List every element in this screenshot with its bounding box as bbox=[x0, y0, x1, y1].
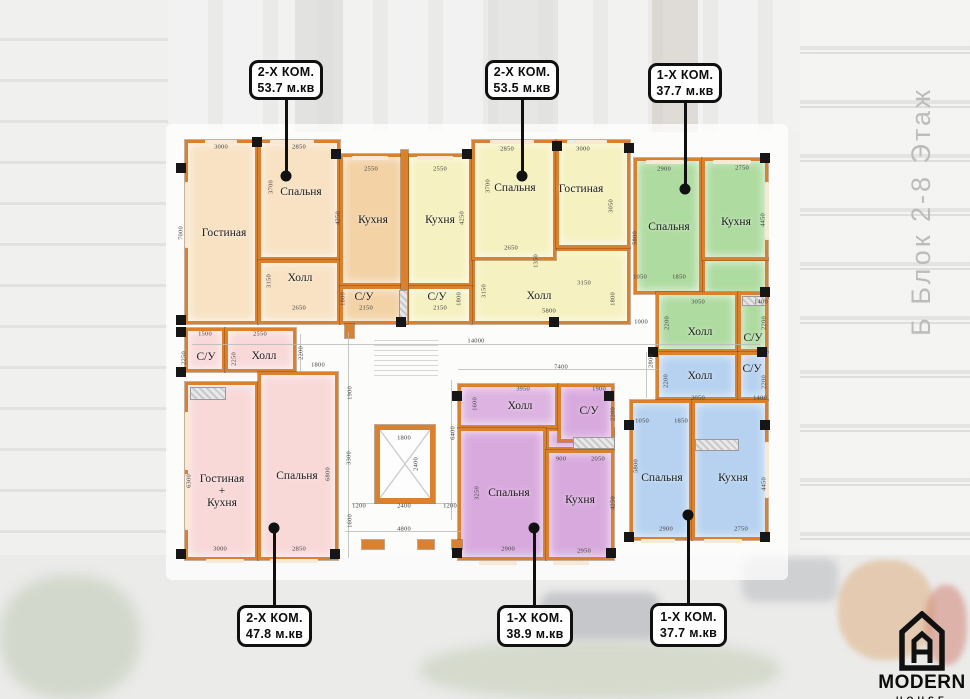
apartment-type-label: 1-Х КОМ. bbox=[507, 610, 564, 626]
dimension-label: 3950 bbox=[516, 386, 530, 393]
modern-house-logo-icon bbox=[899, 611, 945, 671]
window-opening bbox=[185, 182, 189, 248]
dimension-label: 2650 bbox=[292, 305, 306, 312]
dimension-label: 2900 bbox=[659, 526, 673, 533]
dimension-label: 2150 bbox=[433, 305, 447, 312]
room-label: Холл bbox=[688, 370, 713, 382]
dimension-label: 2550 bbox=[433, 166, 447, 173]
wall-junction-block bbox=[604, 391, 614, 401]
apartment-type-label: 2-Х КОМ. bbox=[258, 64, 315, 80]
callout-leader-line bbox=[273, 528, 276, 605]
dimension-label: 2200 bbox=[761, 375, 768, 389]
dimension-label: 1900 bbox=[347, 386, 354, 400]
dimension-label: 1800 bbox=[456, 292, 463, 306]
wall-junction-block bbox=[624, 420, 634, 430]
bush bbox=[0, 575, 140, 699]
room bbox=[185, 382, 258, 560]
callout-dot bbox=[680, 184, 691, 195]
dimension-label: 2400 bbox=[397, 503, 411, 510]
wall-junction-block bbox=[760, 532, 770, 542]
dimension-label: 2200 bbox=[761, 316, 768, 330]
dimension-label: 5800 bbox=[633, 459, 640, 473]
bush bbox=[420, 640, 780, 699]
dimension-label: 4800 bbox=[397, 526, 411, 533]
dimension-label: 2200 bbox=[610, 407, 617, 421]
apartment-callout: 1-Х КОМ.37.7 м.кв bbox=[650, 603, 727, 647]
floor-plan-page: ГостинаяСпальняХоллКухняС/УХоллКухняС/УС… bbox=[0, 0, 970, 699]
room-label: Кухня bbox=[721, 216, 751, 228]
dimension-label: 2550 bbox=[253, 331, 267, 338]
dimension-label: 1800 bbox=[340, 292, 347, 306]
wall-junction-block bbox=[331, 149, 341, 159]
background-building-left bbox=[0, 0, 168, 565]
room bbox=[692, 400, 768, 540]
dimension-label: 1000 bbox=[634, 319, 648, 326]
wall-junction-block bbox=[452, 391, 462, 401]
room-label: Спальня bbox=[276, 470, 317, 482]
dimension-label: 1850 bbox=[672, 274, 686, 281]
callout-dot bbox=[517, 171, 528, 182]
wall-junction-block bbox=[760, 287, 770, 297]
dimension-line bbox=[451, 380, 452, 520]
room bbox=[258, 260, 340, 324]
dimension-label: 4450 bbox=[760, 213, 767, 227]
room-label: Спальня bbox=[280, 186, 321, 198]
dimension-label: 2550 bbox=[364, 166, 378, 173]
dimension-label: 1800 bbox=[397, 435, 411, 442]
window-opening bbox=[641, 539, 675, 543]
room-label: Гостиная + Кухня bbox=[200, 473, 245, 509]
room-label: Кухня bbox=[565, 494, 595, 506]
stair-treads bbox=[374, 336, 438, 376]
wall-junction-block bbox=[760, 420, 770, 430]
dimension-label: 3700 bbox=[268, 180, 275, 194]
callout-dot bbox=[269, 523, 280, 534]
room-label: Холл bbox=[288, 272, 313, 284]
callout-leader-line bbox=[521, 100, 524, 176]
window-opening bbox=[553, 561, 589, 565]
dimension-label: 4450 bbox=[761, 477, 768, 491]
callout-dot bbox=[281, 171, 292, 182]
dimension-label: 6400 bbox=[450, 426, 457, 440]
room-label: С/У bbox=[354, 291, 373, 303]
room-label: Спальня bbox=[494, 182, 535, 194]
dimension-label: 2900 bbox=[501, 546, 515, 553]
callout-leader-line bbox=[533, 528, 536, 605]
apartment-callout: 1-Х КОМ.38.9 м.кв bbox=[497, 605, 573, 647]
callout-leader-line bbox=[285, 100, 288, 176]
company-logo: MODERN HOUSE bbox=[868, 611, 970, 699]
apartment-area-label: 53.7 м.кв bbox=[257, 80, 314, 96]
dimension-label: 6300 bbox=[186, 474, 193, 488]
dimension-label: 1400 bbox=[753, 395, 767, 402]
room bbox=[472, 140, 556, 260]
room-label: Холл bbox=[688, 326, 713, 338]
vent-duct bbox=[695, 439, 739, 451]
dimension-label: 1050 bbox=[633, 274, 647, 281]
dimension-label: 1600 bbox=[472, 397, 479, 411]
window-opening bbox=[765, 182, 769, 240]
dimension-label: 3150 bbox=[577, 280, 591, 287]
dimension-label: 2750 bbox=[734, 526, 748, 533]
dimension-label: 14000 bbox=[467, 338, 484, 345]
vent-duct bbox=[190, 387, 226, 400]
wall-junction-block bbox=[176, 163, 186, 173]
apartment-area-label: 37.7 м.кв bbox=[656, 83, 713, 99]
dimension-label: 3300 bbox=[346, 451, 353, 465]
room bbox=[258, 140, 340, 260]
dimension-label: 5800 bbox=[542, 308, 556, 315]
wall-segment bbox=[362, 540, 384, 549]
dimension-label: 3000 bbox=[214, 144, 228, 151]
dimension-label: 2850 bbox=[292, 144, 306, 151]
room-label: С/У bbox=[196, 351, 215, 363]
room-label: Спальня bbox=[488, 487, 529, 499]
apartment-callout: 2-Х КОМ.47.8 м.кв bbox=[237, 605, 312, 647]
wall-junction-block bbox=[624, 143, 634, 153]
dimension-label: 3150 bbox=[266, 274, 273, 288]
dimension-label: 3250 bbox=[474, 486, 481, 500]
window-opening bbox=[185, 412, 189, 470]
window-opening bbox=[713, 160, 751, 164]
wall-junction-block bbox=[176, 327, 186, 337]
wall-segment bbox=[418, 540, 434, 549]
room-label: Кухня bbox=[425, 214, 455, 226]
dimension-label: 1900 bbox=[592, 386, 606, 393]
wall-junction-block bbox=[252, 137, 262, 147]
logo-name: MODERN bbox=[868, 672, 970, 694]
room-label: Кухня bbox=[718, 472, 748, 484]
room-label: Холл bbox=[527, 290, 552, 302]
dimension-label: 1850 bbox=[674, 418, 688, 425]
room-label: С/У bbox=[427, 291, 446, 303]
dimension-label: 1500 bbox=[198, 331, 212, 338]
dimension-label: 2650 bbox=[504, 245, 518, 252]
apartment-area-label: 47.8 м.кв bbox=[246, 626, 303, 642]
room-label: Гостиная bbox=[559, 183, 604, 195]
dimension-label: 2950 bbox=[577, 548, 591, 555]
wall-junction-block bbox=[176, 315, 186, 325]
dimension-label: 2150 bbox=[359, 305, 373, 312]
logo-subtitle: HOUSE bbox=[868, 695, 970, 699]
dimension-label: 2200 bbox=[664, 316, 671, 330]
wall-junction-block bbox=[760, 153, 770, 163]
dimension-label: 2900 bbox=[657, 166, 671, 173]
dimension-label: 900 bbox=[556, 456, 566, 463]
room-label: С/У bbox=[579, 405, 598, 417]
dimension-label: 3000 bbox=[576, 146, 590, 153]
dimension-label: 1350 bbox=[533, 254, 540, 268]
wall-junction-block bbox=[330, 549, 340, 559]
window-opening bbox=[417, 156, 453, 160]
dimension-label: 2800 bbox=[648, 354, 655, 368]
dimension-label: 2200 bbox=[663, 374, 670, 388]
room-label: С/У bbox=[742, 363, 761, 375]
wall-junction-block bbox=[396, 317, 406, 327]
apartment-type-label: 1-Х КОМ. bbox=[660, 609, 717, 625]
apartment-area-label: 53.5 м.кв bbox=[493, 80, 550, 96]
room-label: Холл bbox=[508, 400, 533, 412]
wall-junction-block bbox=[757, 347, 767, 357]
room-label: Спальня bbox=[641, 472, 682, 484]
callout-leader-line bbox=[687, 515, 690, 603]
wall-junction-block bbox=[452, 548, 462, 558]
block-floor-caption: Б Блок 2-8 Этаж bbox=[906, 26, 937, 336]
dimension-label: 1200 bbox=[443, 503, 457, 510]
dimension-label: 7400 bbox=[554, 364, 568, 371]
dimension-label: 3050 bbox=[691, 395, 705, 402]
room bbox=[702, 158, 768, 260]
dimension-label: 7000 bbox=[178, 226, 185, 240]
callout-dot bbox=[529, 523, 540, 534]
window-opening bbox=[490, 140, 534, 144]
dimension-label: 6800 bbox=[325, 467, 332, 481]
room-label: Гостиная bbox=[202, 227, 247, 239]
dimension-label: 3150 bbox=[481, 284, 488, 298]
dimension-label: 2400 bbox=[413, 457, 420, 471]
wall-junction-block bbox=[606, 548, 616, 558]
dimension-label: 1400 bbox=[754, 299, 768, 306]
dimension-label: 2250 bbox=[181, 351, 188, 365]
dimension-label: 1600 bbox=[347, 514, 354, 528]
apartment-area-label: 37.7 м.кв bbox=[660, 625, 717, 641]
dimension-label: 2850 bbox=[500, 146, 514, 153]
apartment-type-label: 2-Х КОМ. bbox=[494, 64, 551, 80]
wall-junction-block bbox=[176, 549, 186, 559]
wall-junction-block bbox=[176, 367, 186, 377]
dimension-label: 2850 bbox=[292, 546, 306, 553]
dimension-label: 5800 bbox=[632, 231, 639, 245]
callout-dot bbox=[683, 510, 694, 521]
dimension-label: 4250 bbox=[335, 211, 342, 225]
window-opening bbox=[352, 156, 388, 160]
window-opening bbox=[704, 539, 742, 543]
apartment-callout: 2-Х КОМ.53.5 м.кв bbox=[485, 60, 559, 100]
window-opening bbox=[479, 561, 517, 565]
apartment-callout: 2-Х КОМ.53.7 м.кв bbox=[249, 60, 323, 100]
room-label: Кухня bbox=[358, 214, 388, 226]
apartment-area-label: 38.9 м.кв bbox=[506, 626, 563, 642]
wall-segment bbox=[345, 324, 354, 338]
dimension-label: 1200 bbox=[352, 503, 366, 510]
apartment-type-label: 2-Х КОМ. bbox=[246, 610, 303, 626]
dimension-label: 2750 bbox=[735, 165, 749, 172]
callout-leader-line bbox=[684, 103, 687, 189]
dimension-label: 3050 bbox=[608, 199, 615, 213]
apartment-callout: 1-Х КОМ.37.7 м.кв bbox=[648, 63, 722, 103]
window-opening bbox=[646, 160, 684, 164]
window-opening bbox=[567, 140, 607, 144]
window-opening bbox=[206, 559, 244, 563]
vent-duct bbox=[573, 437, 615, 449]
dimension-label: 1050 bbox=[635, 418, 649, 425]
wall-junction-block bbox=[552, 141, 562, 151]
window-opening bbox=[270, 559, 318, 563]
dimension-label: 1800 bbox=[610, 292, 617, 306]
wall-junction-block bbox=[624, 532, 634, 542]
dimension-label: 4250 bbox=[459, 211, 466, 225]
dimension-label: 2200 bbox=[298, 346, 305, 360]
room-label: Холл bbox=[252, 350, 277, 362]
dimension-label: 3000 bbox=[213, 546, 227, 553]
dimension-label: 2050 bbox=[591, 456, 605, 463]
dimension-label: 1800 bbox=[311, 362, 325, 369]
wall-junction-block bbox=[549, 317, 559, 327]
dimension-label: 4250 bbox=[610, 496, 617, 510]
dimension-label: 2250 bbox=[231, 352, 238, 366]
dimension-label: 3700 bbox=[485, 179, 492, 193]
room-label: С/У bbox=[743, 332, 762, 344]
dimension-label: 3050 bbox=[691, 299, 705, 306]
wall-junction-block bbox=[462, 149, 472, 159]
room-label: Спальня bbox=[648, 221, 689, 233]
apartment-type-label: 1-Х КОМ. bbox=[657, 67, 714, 83]
